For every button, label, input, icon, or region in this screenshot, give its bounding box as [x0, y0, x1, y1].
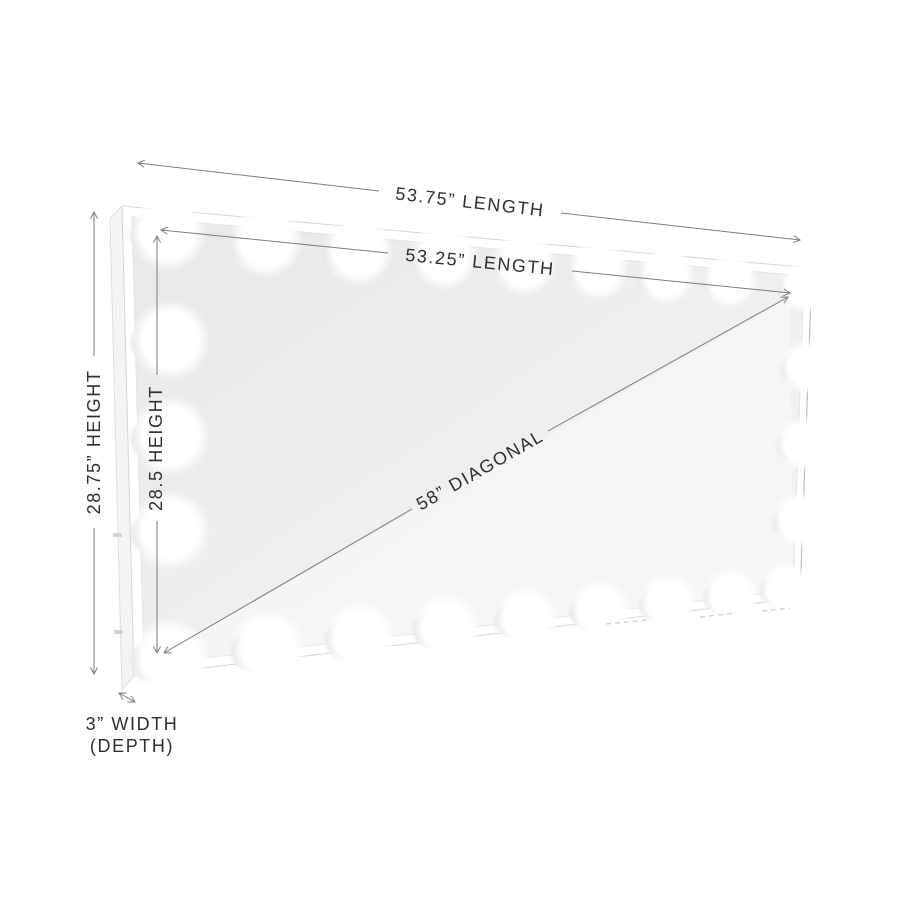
light-bulb	[776, 416, 833, 473]
depth-label-line1: 3” WIDTH	[86, 714, 179, 734]
light-bulb	[230, 610, 307, 687]
light-bulb	[129, 193, 207, 271]
light-bulb	[130, 396, 211, 477]
inner-height-label: 28.5 HEIGHT	[146, 385, 166, 511]
outer-length-line	[561, 213, 800, 240]
light-bulb	[130, 490, 211, 571]
light-bulb	[778, 260, 832, 314]
diagram-canvas: 53.75” LENGTH 53.25” LENGTH 58” DIAGONAL…	[0, 0, 900, 900]
outer-height-label: 28.75” HEIGHT	[84, 370, 104, 515]
light-bulb	[412, 593, 481, 662]
light-bulb	[130, 618, 211, 699]
depth-label-line2: (DEPTH)	[90, 736, 174, 756]
light-bulb	[702, 252, 759, 309]
light-bulb	[494, 586, 559, 651]
light-bulb	[130, 300, 211, 381]
light-bulb	[569, 579, 631, 641]
light-bulb	[567, 238, 629, 300]
light-bulb	[759, 562, 813, 616]
light-bulb	[636, 245, 695, 304]
side-panel-seam	[113, 533, 122, 537]
light-bulb	[324, 601, 397, 674]
side-panel-seam	[114, 630, 123, 634]
light-bulb	[780, 339, 837, 396]
mirror-dimensions-diagram: 53.75” LENGTH 53.25” LENGTH 58” DIAGONAL…	[0, 0, 900, 900]
light-bulb	[638, 573, 697, 632]
outer-length-label: 53.75” LENGTH	[394, 183, 545, 220]
light-bulb	[772, 492, 829, 549]
outer-length-line	[138, 163, 379, 191]
depth-arrow	[119, 693, 135, 702]
